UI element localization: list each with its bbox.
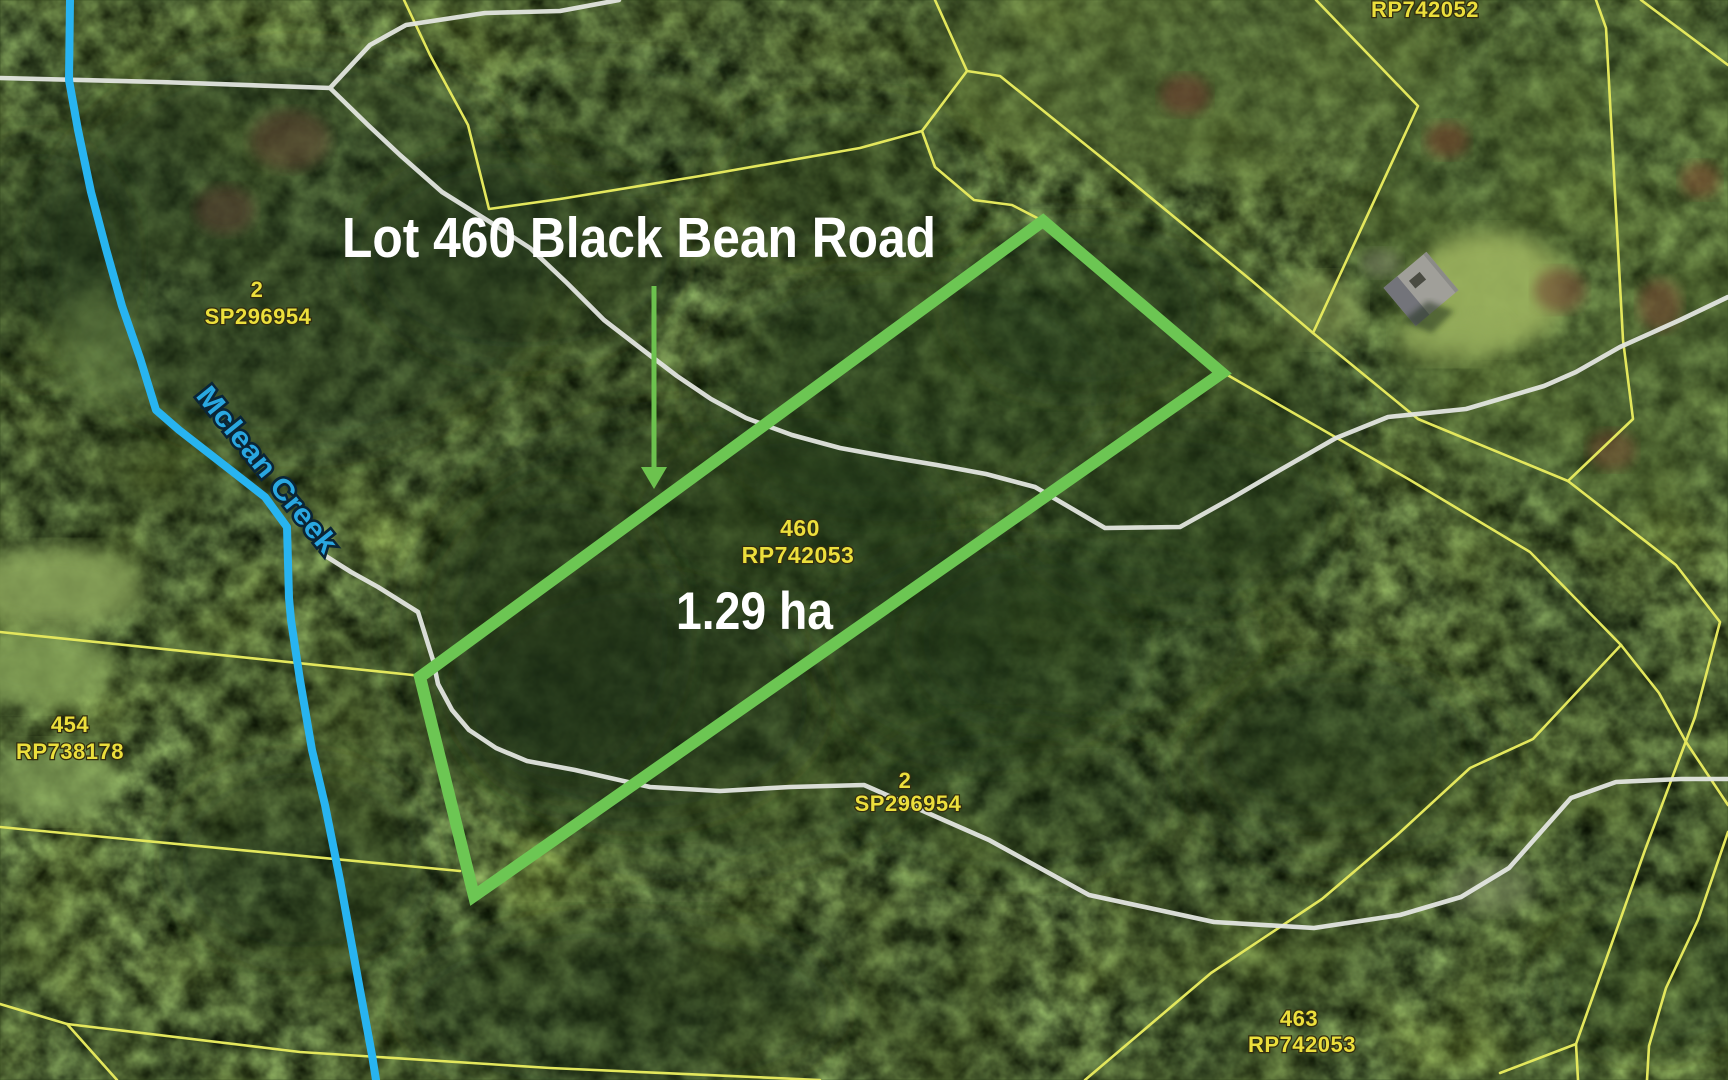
svg-text:2: 2 [251, 277, 264, 302]
svg-text:SP296954: SP296954 [205, 304, 312, 329]
svg-text:454: 454 [51, 712, 89, 737]
svg-text:RP738178: RP738178 [16, 739, 124, 764]
svg-text:2: 2 [899, 768, 912, 793]
svg-text:460: 460 [780, 515, 820, 541]
svg-text:SP296954: SP296954 [855, 791, 962, 816]
svg-text:463: 463 [1280, 1006, 1318, 1031]
svg-text:Lot 460 Black Bean Road: Lot 460 Black Bean Road [342, 206, 936, 270]
svg-text:1.29 ha: 1.29 ha [676, 582, 833, 641]
svg-text:RP742053: RP742053 [742, 542, 855, 568]
svg-text:RP742053: RP742053 [1248, 1032, 1356, 1057]
svg-text:RP742052: RP742052 [1371, 0, 1479, 22]
